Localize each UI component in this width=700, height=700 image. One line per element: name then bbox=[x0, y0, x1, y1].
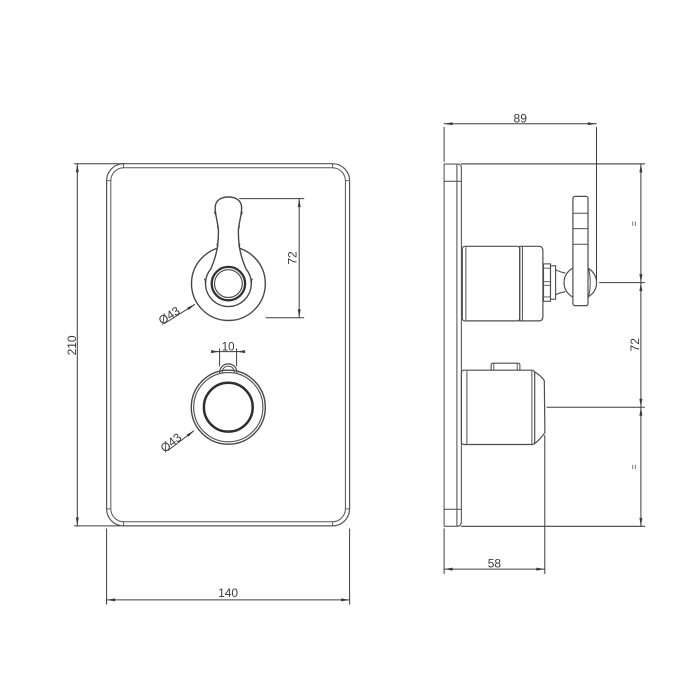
svg-text:10: 10 bbox=[222, 342, 235, 354]
svg-text:Ø43: Ø43 bbox=[156, 303, 183, 327]
svg-text:210: 210 bbox=[65, 335, 79, 355]
svg-text:=: = bbox=[629, 464, 639, 469]
svg-text:58: 58 bbox=[488, 556, 502, 570]
svg-text:140: 140 bbox=[218, 586, 238, 600]
svg-text:89: 89 bbox=[514, 112, 528, 126]
svg-text:72: 72 bbox=[628, 338, 642, 352]
svg-text:=: = bbox=[629, 221, 639, 226]
svg-text:Ø43: Ø43 bbox=[158, 430, 185, 455]
svg-text:72: 72 bbox=[285, 251, 299, 265]
